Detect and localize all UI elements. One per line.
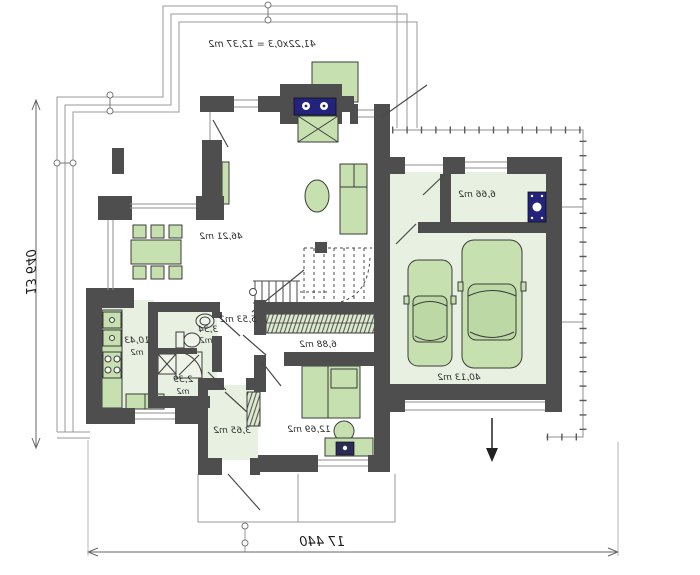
window: [465, 162, 507, 168]
wall: [155, 348, 197, 354]
terrace-note: 41,22x0,3 = 12,37 m2: [208, 39, 315, 50]
dining-chair: [151, 266, 164, 279]
wall: [250, 458, 260, 475]
stairs: [250, 242, 373, 312]
wall: [198, 458, 222, 475]
wall: [148, 396, 210, 408]
boiler: [528, 192, 546, 222]
garage-car-small: [404, 260, 456, 366]
wardrobe-hatch: [266, 314, 384, 333]
desk-laptop: [336, 442, 354, 455]
wall: [254, 302, 390, 314]
porch-outline: [198, 474, 395, 552]
wall: [258, 455, 318, 472]
wall: [388, 157, 405, 174]
stair-newel-post: [315, 242, 327, 253]
wardrobe-door-swing: [243, 335, 266, 355]
wall-window-column: [98, 196, 132, 220]
garage-door: [405, 400, 545, 412]
room-label-garage: 40,13 m2: [437, 373, 480, 383]
toilet-tank: [176, 332, 184, 348]
wall: [246, 378, 258, 390]
bed-pillow: [331, 369, 357, 388]
wall: [546, 157, 562, 400]
driveway-arrow: [486, 418, 498, 462]
fireplace: [294, 98, 338, 142]
toilet-bowl: [184, 333, 200, 347]
room-label-kitchen: 10,43: [124, 336, 150, 346]
wall: [350, 104, 358, 124]
wall: [212, 336, 222, 372]
wall: [150, 302, 220, 312]
terrace-bottom-step: [57, 432, 90, 438]
wall: [86, 300, 102, 408]
window: [108, 220, 113, 290]
wall: [86, 408, 135, 424]
dining-chair: [133, 225, 146, 238]
room-label-wardrobe: 6,88 m2: [299, 340, 337, 350]
room-label-wc: 2,39: [173, 375, 193, 385]
dining-set: [131, 225, 182, 279]
dimension-bottom: [88, 440, 618, 556]
floor-plan-svg: 41,22x0,3 = 12,37 m2 46,21 m2 10,43 m2 3…: [0, 0, 700, 575]
wall: [368, 455, 390, 472]
dining-chair: [151, 225, 164, 238]
room-unit-bathroom: m2: [200, 336, 213, 345]
window: [234, 100, 258, 107]
wall: [390, 400, 405, 412]
wall-tv: [202, 140, 222, 220]
garage-car-large: [458, 240, 526, 368]
wall: [443, 157, 465, 174]
window: [135, 413, 175, 419]
window: [318, 460, 368, 466]
room-label-bedroom: 12,69 m2: [287, 425, 330, 435]
dining-table: [131, 240, 181, 264]
terrace-column: [112, 148, 124, 174]
window: [130, 204, 196, 208]
wall: [200, 96, 234, 112]
room-label-living: 46,21 m2: [199, 232, 242, 242]
wall: [175, 408, 200, 424]
dimension-width-label: 17 440: [299, 535, 345, 550]
wall: [374, 104, 390, 384]
room-label-vestibule: 3,65 m2: [213, 426, 251, 436]
floor-plan-page: 41,22x0,3 = 12,37 m2 46,21 m2 10,43 m2 3…: [0, 0, 700, 575]
wall: [545, 400, 562, 412]
bed: [302, 366, 360, 418]
wall: [440, 174, 451, 222]
stairs-upper-dashed: [300, 248, 372, 303]
back-door-swing: [382, 85, 427, 117]
wall: [86, 288, 134, 308]
chimney-vent: [294, 98, 336, 115]
dining-chair: [133, 266, 146, 279]
wall: [284, 352, 390, 366]
room-label-technical: 6,66 m2: [458, 190, 496, 200]
coffee-table: [305, 180, 329, 212]
room-unit-wc: m2: [177, 387, 190, 396]
dining-chair: [169, 225, 182, 238]
entrance-door-swing: [228, 474, 260, 510]
wall-partition-technical: [418, 222, 546, 233]
dining-chair: [169, 266, 182, 279]
vestibule-wardrobe-hatch: [247, 392, 260, 426]
room-label-hall: 5,53 m2: [219, 315, 257, 325]
window: [358, 110, 374, 117]
wall: [390, 384, 562, 400]
room-unit-kitchen: m2: [131, 348, 144, 357]
room-label-bathroom: 3,34: [198, 325, 218, 335]
washing-machine: [158, 354, 176, 374]
dimension-height-label: 13 640: [22, 249, 37, 295]
